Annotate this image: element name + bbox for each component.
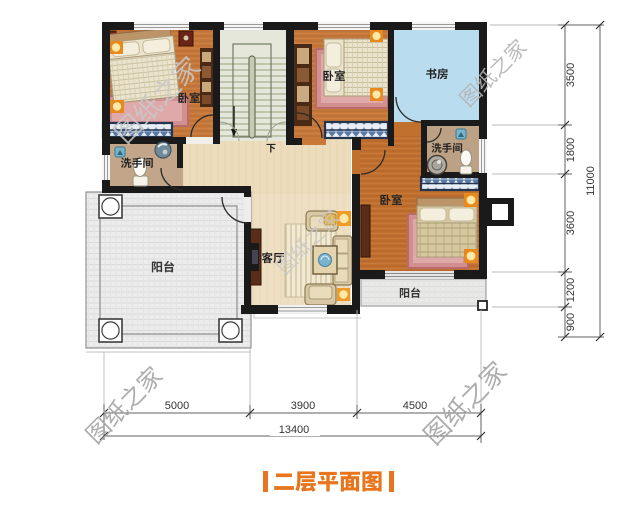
svg-text:3900: 3900 bbox=[291, 400, 315, 412]
svg-text:1800: 1800 bbox=[565, 138, 577, 162]
svg-text:4500: 4500 bbox=[403, 400, 427, 412]
svg-text:13400: 13400 bbox=[279, 424, 310, 436]
svg-text:3600: 3600 bbox=[565, 211, 577, 235]
svg-text:900: 900 bbox=[565, 313, 577, 331]
svg-text:3500: 3500 bbox=[565, 63, 577, 87]
svg-text:5000: 5000 bbox=[165, 400, 189, 412]
svg-text:11000: 11000 bbox=[585, 166, 597, 196]
svg-text:1200: 1200 bbox=[565, 278, 577, 302]
